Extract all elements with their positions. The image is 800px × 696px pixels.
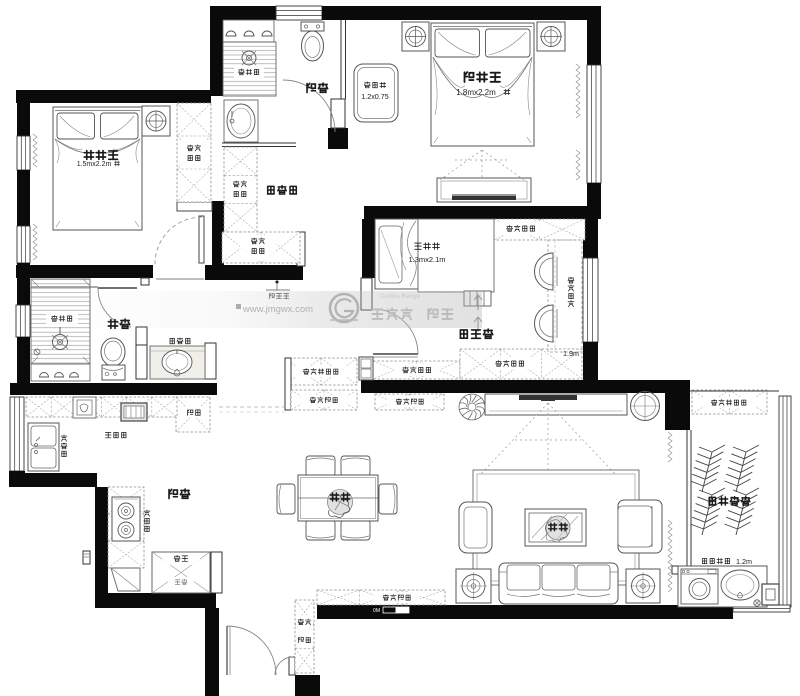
svg-text:1.5mx2.2m: 1.5mx2.2m: [77, 161, 112, 168]
svg-text:0M: 0M: [373, 608, 380, 614]
svg-text:1.9m: 1.9m: [563, 349, 579, 358]
svg-text:www.jmgwx.com: www.jmgwx.com: [242, 304, 313, 315]
svg-text:1.2x0.75: 1.2x0.75: [361, 92, 389, 101]
svg-text:1.2m: 1.2m: [736, 557, 752, 566]
svg-text:1.8mx2.2m: 1.8mx2.2m: [456, 88, 496, 97]
svg-text:Collins Range: Collins Range: [380, 294, 421, 300]
svg-text:1.3mx2.1m: 1.3mx2.1m: [408, 255, 445, 264]
